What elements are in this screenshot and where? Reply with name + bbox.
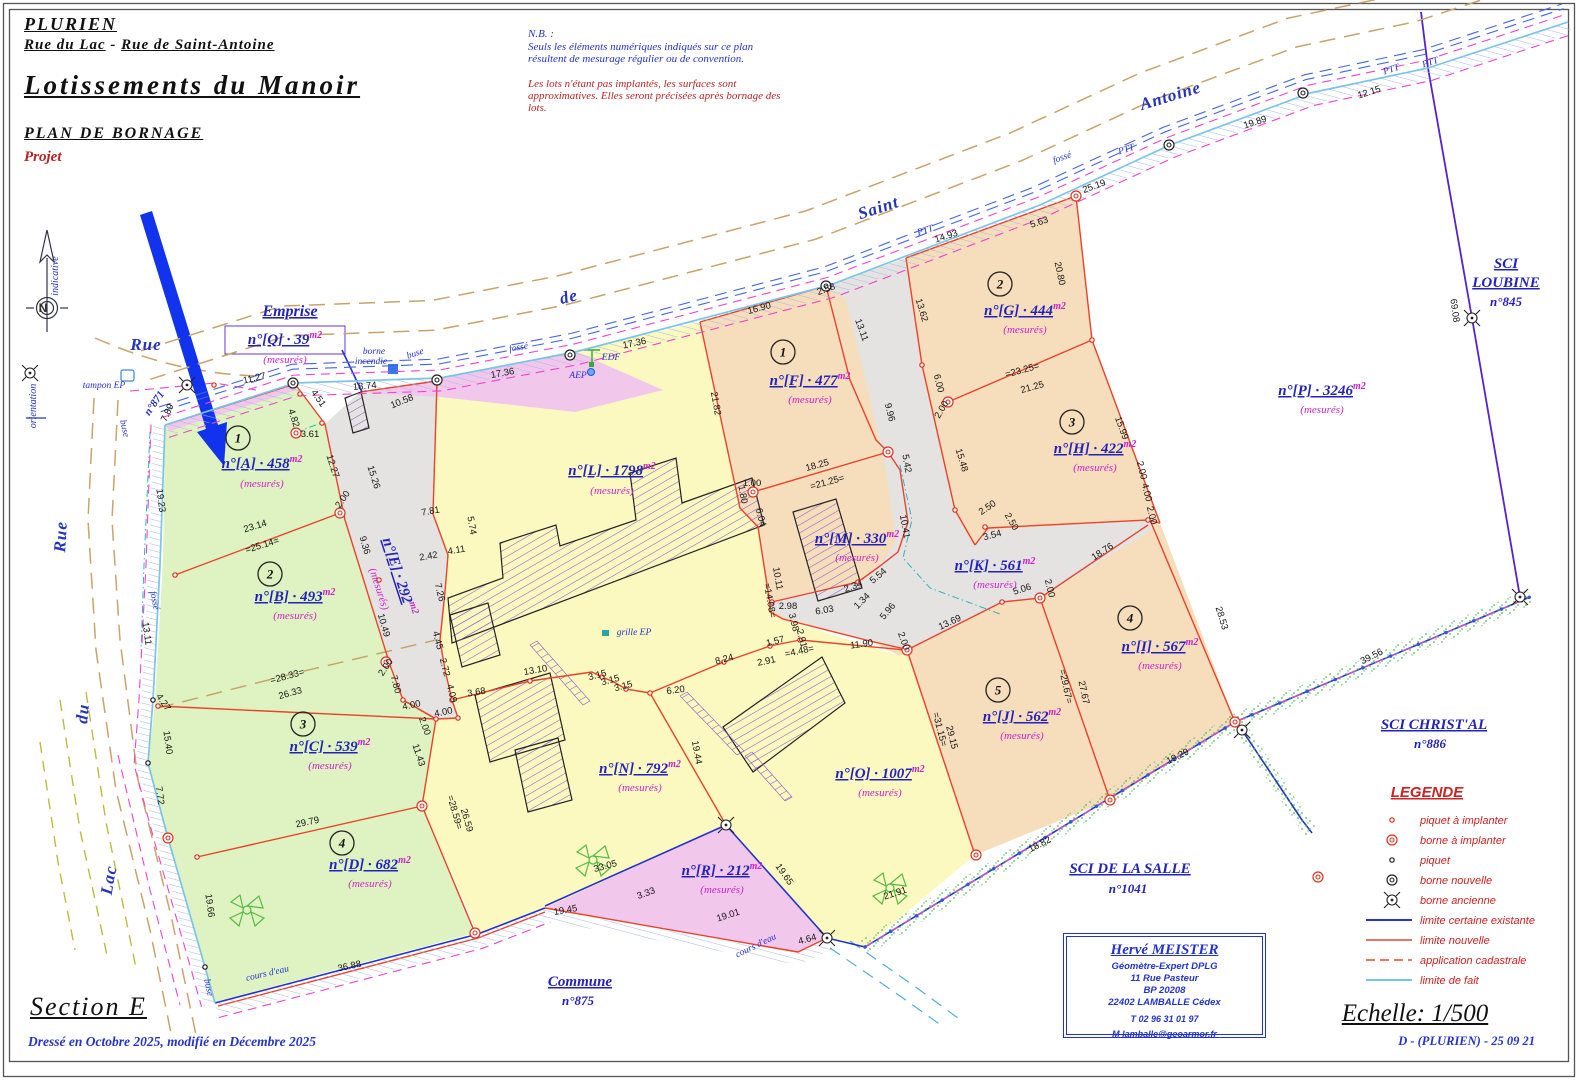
- plan-title: Lotissements du Manoir: [24, 70, 360, 101]
- dimension-label: 7.89: [159, 402, 177, 423]
- section-label: Section E: [30, 992, 147, 1022]
- dimension-label: 69.08: [1447, 298, 1461, 323]
- aep-icon: [588, 369, 595, 376]
- piquet-a-implanter-symbol: [456, 716, 460, 720]
- legend-symbols: [1366, 818, 1412, 980]
- piquet-a-implanter-symbol: [434, 717, 438, 721]
- parcel-fills: [148, 196, 1235, 1002]
- nb-body-blue: Seuls les éléments numériques indiqués s…: [528, 41, 783, 65]
- doc-type: PLAN DE BORNAGE: [24, 125, 360, 143]
- edf-box-icon: [589, 362, 594, 367]
- piquet-a-implanter-symbol: [1090, 338, 1094, 342]
- piquet-a-implanter-symbol: [770, 600, 774, 604]
- borne-a-implanter-symbol: [417, 801, 427, 811]
- borne-a-implanter-symbol: [381, 657, 391, 667]
- annotation-label: fossé: [508, 340, 529, 354]
- piquet-a-implanter-symbol: [722, 660, 726, 664]
- borne-a-implanter-symbol: [971, 850, 981, 860]
- borne-nouvelle-symbol: [288, 378, 298, 388]
- borne-a-implanter-symbol: [291, 428, 301, 438]
- piquet-symbol: [151, 698, 155, 702]
- piquet-a-implanter-symbol: [173, 573, 177, 577]
- piquet-a-implanter-symbol: [768, 644, 772, 648]
- surveyor-email: M lamballe@geoarmor.fr: [1067, 1029, 1262, 1039]
- borne-a-implanter-symbol: [163, 833, 173, 843]
- nb-body-red: Les lots n'étant pas implantés, les surf…: [528, 78, 783, 114]
- neighbor-label: LOUBINE: [1471, 275, 1540, 291]
- piquet-a-implanter-symbol: [920, 363, 924, 367]
- street-names: Rue du Lac - Rue de Saint-Antoine: [24, 37, 360, 54]
- surveyor-title: Géomètre-Expert DPLG: [1067, 961, 1262, 973]
- plan-reference: D - (PLURIEN) - 25 09 21: [1295, 1034, 1535, 1049]
- legend-item-application-cadastrale: application cadastrale: [1420, 955, 1526, 967]
- piquet-a-implanter-symbol: [600, 675, 604, 679]
- borne-ancienne-symbol: [22, 365, 38, 381]
- piquet-symbol: [146, 761, 150, 765]
- borne-nouvelle-symbol: [1164, 140, 1174, 150]
- borne-ancienne-symbol: [1464, 310, 1480, 326]
- title-block: PLURIEN Rue du Lac - Rue de Saint-Antoin…: [24, 14, 360, 166]
- hedge-band: [1242, 730, 1312, 833]
- surveyor-address2: BP 20208: [1067, 985, 1262, 997]
- dimension-label: 11.27: [242, 371, 267, 387]
- borne-a-implanter-symbol: [1105, 795, 1115, 805]
- lot-measured-note: (mesurés): [1300, 404, 1344, 416]
- piquet-a-implanter-symbol: [856, 580, 860, 584]
- neighbor-label: n°845: [1490, 294, 1522, 309]
- borne-a-implanter-symbol: [943, 397, 953, 407]
- surveyor-address3: 22402 LAMBALLE Cédex: [1067, 997, 1262, 1009]
- north-arrow: [26, 230, 68, 418]
- nb-note: N.B. : Seuls les éléments numériques ind…: [528, 28, 783, 114]
- annotation-label: buse: [117, 419, 130, 438]
- neighbor-label: Commune: [548, 974, 613, 990]
- borne-a-implanter-symbol: [1230, 717, 1240, 727]
- street-label: Rue: [129, 335, 161, 354]
- legend-item-limite-nouvelle: limite nouvelle: [1420, 935, 1490, 947]
- emprise-label-box: [225, 326, 345, 354]
- borne-nouvelle-symbol: [1298, 88, 1308, 98]
- legend-title: LEGENDE: [1391, 784, 1465, 801]
- borne-a-implanter-symbol: [1071, 191, 1081, 201]
- street-label: Lac: [96, 864, 120, 897]
- borne-a-implanter-symbol: [470, 928, 480, 938]
- piquet-a-implanter-symbol: [320, 421, 324, 425]
- dimension-label: 28.53: [1213, 605, 1230, 631]
- borne-nouvelle-symbol: [821, 281, 831, 291]
- neighbor-label: n°1041: [1109, 881, 1147, 896]
- piquet-a-implanter-symbol: [983, 525, 987, 529]
- piquet-a-implanter-symbol: [195, 855, 199, 859]
- street-label: Antoine: [1137, 77, 1204, 114]
- status-label: Projet: [24, 149, 360, 166]
- borne-nouvelle-symbol: [565, 350, 575, 360]
- legend-item-borne-nouvelle: borne nouvelle: [1420, 875, 1492, 887]
- neighbor-label: SCI DE LA SALLE: [1069, 861, 1190, 877]
- annotation-label: orientation: [28, 384, 39, 428]
- scale-label: Echelle: 1/500: [1295, 1000, 1535, 1028]
- surveyor-phone: T 02 96 31 01 97: [1067, 1014, 1262, 1024]
- plan-sheet: 18.7410.5817.3617.3616.902.5814.935.6325…: [0, 0, 1578, 1080]
- lot-measured-note: (mesurés): [263, 354, 307, 366]
- legend-item-limite-certaine-existante: limite certaine existante: [1420, 915, 1535, 927]
- neighbor-label: n°886: [1414, 736, 1446, 751]
- lot-label-P: n°[P] ∙ 3246m2: [1278, 381, 1366, 399]
- piquet-a-implanter-symbol: [156, 704, 160, 708]
- annotation-label: indicative: [50, 256, 61, 296]
- annotation-label: tampon EP: [83, 381, 126, 391]
- street-label: Rue: [50, 521, 71, 554]
- surveyor-stamp: Hervé MEISTER Géomètre-Expert DPLG 11 Ru…: [1066, 936, 1263, 1035]
- legend-item-borne-a-implanter: borne à implanter: [1420, 835, 1507, 847]
- surveyor-name: Hervé MEISTER: [1067, 942, 1262, 959]
- tampon-ep-icon: [121, 370, 134, 381]
- annotation-label: borne: [363, 347, 385, 357]
- piquet-a-implanter-symbol: [1000, 600, 1004, 604]
- annotation-label: n°871: [142, 389, 167, 418]
- piquet-a-implanter-symbol: [212, 383, 216, 387]
- borne-a-implanter-symbol: [902, 645, 912, 655]
- legend-item-limite-de-fait: limite de fait: [1420, 975, 1480, 987]
- borne-a-implanter-symbol: [1313, 872, 1323, 882]
- legend-item-borne-ancienne: borne ancienne: [1420, 895, 1496, 907]
- piquet-a-implanter-symbol: [798, 638, 802, 642]
- neighbor-label: n°875: [562, 993, 594, 1008]
- annotation-label: fossé: [1051, 149, 1073, 166]
- legend-item-piquet-a-implanter: piquet à implanter: [1419, 815, 1509, 827]
- borne-a-implanter-symbol: [1035, 593, 1045, 603]
- piquet-symbol: [203, 965, 207, 969]
- neighbor-label: SCI: [1494, 256, 1519, 272]
- commune-name: PLURIEN: [24, 14, 360, 35]
- borne-a-implanter-symbol: [748, 487, 758, 497]
- borne-nouvelle-symbol: [432, 375, 442, 385]
- piquet-a-implanter-symbol: [648, 691, 652, 695]
- borne-a-implanter-symbol: [335, 508, 345, 518]
- street-label: Saint: [855, 192, 901, 223]
- piquet-a-implanter-symbol: [298, 392, 302, 396]
- piquet-a-implanter-symbol: [1146, 518, 1150, 522]
- legend-item-piquet: piquet: [1419, 855, 1451, 867]
- piquet-a-implanter-symbol: [401, 698, 405, 702]
- grille-ep-icon: [602, 630, 609, 636]
- borne-a-implanter-symbol: [883, 447, 893, 457]
- nb-heading: N.B. :: [528, 28, 783, 40]
- piquet-a-implanter-symbol: [528, 679, 532, 683]
- piquet-a-implanter-symbol: [450, 698, 454, 702]
- piquet-a-implanter-symbol: [624, 687, 628, 691]
- piquet-a-implanter-symbol: [377, 578, 381, 582]
- drafted-label: Dressé en Octobre 2025, modifié en Décem…: [28, 1034, 316, 1050]
- surveyor-address1: 11 Rue Pasteur: [1067, 973, 1262, 985]
- neighbor-label: SCI CHRIST'AL: [1381, 717, 1487, 733]
- piquet-a-implanter-symbol: [953, 508, 957, 512]
